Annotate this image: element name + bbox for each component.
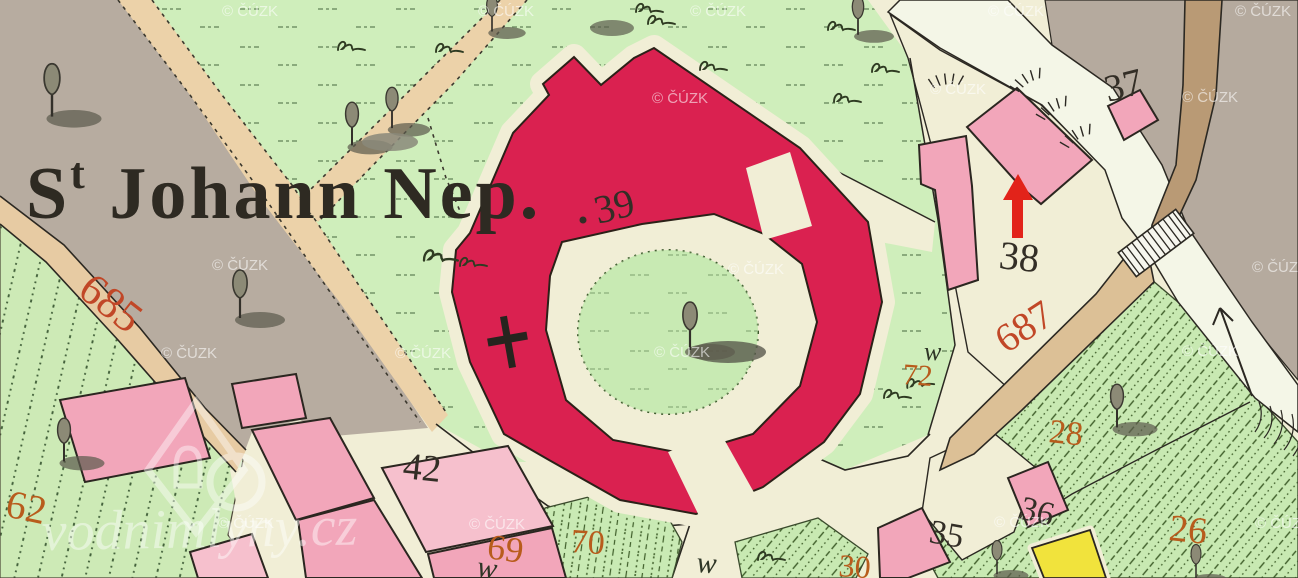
cuzk-watermark: © ČÚZK xyxy=(1235,3,1291,20)
cuzk-watermark: © ČÚZK xyxy=(469,516,525,533)
label-39-dot xyxy=(580,217,587,224)
meadow-mark-w: w xyxy=(696,546,718,578)
cuzk-watermark: © ČÚZK xyxy=(218,515,274,532)
cuzk-watermark: © ČÚZK xyxy=(654,344,710,361)
parcel-label-35: 35 xyxy=(927,513,967,555)
cuzk-watermark: © ČÚZK xyxy=(930,81,986,98)
cuzk-watermark: © ČÚZK xyxy=(222,3,278,20)
cuzk-watermark: © ČÚZK xyxy=(690,3,746,20)
cuzk-watermark: © ČÚZK xyxy=(988,3,1044,20)
building-pink xyxy=(232,374,306,428)
parcel-label-28: 28 xyxy=(1047,413,1085,453)
parcel-label-42: 42 xyxy=(401,445,443,491)
cuzk-watermark: © ČÚZK xyxy=(1182,89,1238,106)
cuzk-watermark: © ČÚZK xyxy=(1252,259,1298,276)
cuzk-watermark: © ČÚZK xyxy=(1182,343,1238,360)
place-name: St Johann Nep. xyxy=(26,149,541,235)
site-watermark-text: vodnimlyny.cz xyxy=(41,495,358,563)
cuzk-watermark: © ČÚZK xyxy=(994,514,1050,531)
parcel-label-30: 30 xyxy=(838,547,872,578)
parcel-label-26: 26 xyxy=(1167,507,1209,553)
cadastral-map: St Johann Nep. 39 42 35 36 37 38 62 69 7… xyxy=(0,0,1298,578)
cuzk-watermark: © ČÚZK xyxy=(161,345,217,362)
bush xyxy=(362,133,418,151)
tree-shadow xyxy=(590,20,634,36)
parcel-label-38: 38 xyxy=(997,232,1041,281)
cuzk-watermark: © ČÚZK xyxy=(395,345,451,362)
cuzk-watermark: © ČÚZK xyxy=(728,261,784,278)
cuzk-watermark: © ČÚZK xyxy=(478,3,534,20)
cuzk-watermark: © ČÚZK xyxy=(212,257,268,274)
meadow-mark-w: w xyxy=(475,550,499,578)
cuzk-watermark: © ČÚZK xyxy=(1255,515,1298,532)
meadow-mark-w: w xyxy=(924,337,942,366)
cuzk-watermark: © ČÚZK xyxy=(652,90,708,107)
cadastral-map-viewport[interactable]: St Johann Nep. 39 42 35 36 37 38 62 69 7… xyxy=(0,0,1298,578)
parcel-label-70: 70 xyxy=(569,523,605,562)
